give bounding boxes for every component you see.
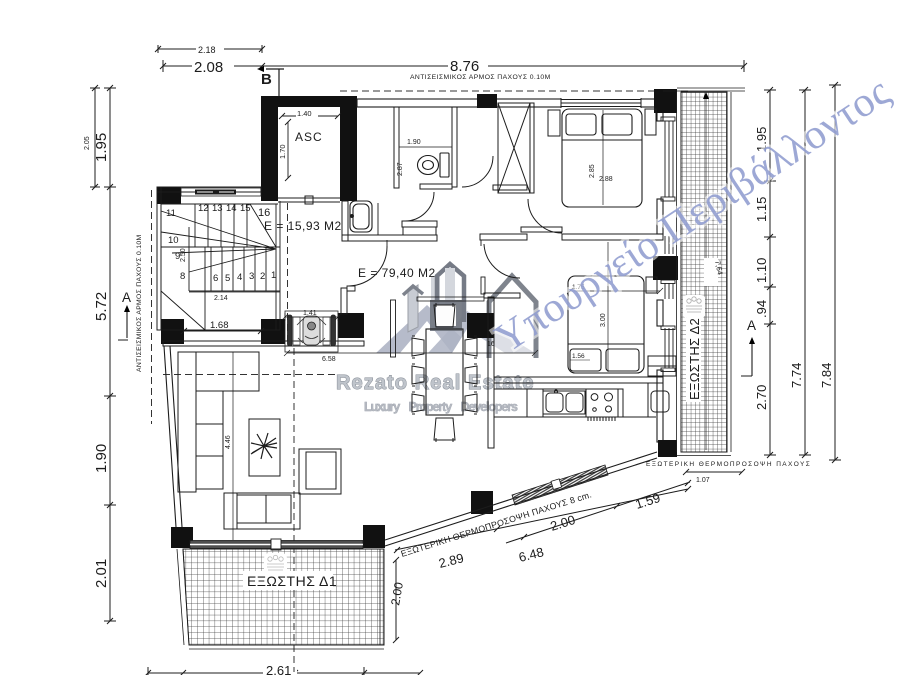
svg-text:5.72: 5.72	[93, 292, 110, 321]
svg-text:ΑΝΤΙΣΕΙΣΜΙΚΟΣ ΑΡΜΟΣ ΠΑΧΟΥΣ 0.1: ΑΝΤΙΣΕΙΣΜΙΚΟΣ ΑΡΜΟΣ ΠΑΧΟΥΣ 0.10Μ	[136, 235, 143, 372]
svg-text:ASC: ASC	[295, 130, 323, 144]
svg-text:14: 14	[226, 203, 237, 214]
svg-text:1.40: 1.40	[297, 109, 312, 118]
svg-text:A: A	[122, 290, 131, 305]
svg-text:A: A	[747, 318, 756, 333]
svg-text:2.18: 2.18	[198, 45, 216, 55]
svg-text:1.56: 1.56	[572, 353, 585, 360]
svg-text:8: 8	[180, 271, 185, 282]
svg-text:ΕΞΩΣΤΗΣ Δ2: ΕΞΩΣΤΗΣ Δ2	[687, 318, 702, 400]
svg-text:E = 79,40 M2: E = 79,40 M2	[358, 266, 436, 280]
svg-text:2.08: 2.08	[194, 59, 223, 76]
svg-text:1.07: 1.07	[696, 477, 710, 484]
svg-text:11: 11	[166, 208, 176, 219]
svg-text:E = 15,93 M2: E = 15,93 M2	[264, 219, 342, 233]
svg-text:7.84: 7.84	[819, 363, 834, 388]
svg-text:ΕΞΩΤΕΡΙΚΗ ΘΕΡΜΟΠΡΟΣΟΨΗ ΠΑΧΟΥΣ: ΕΞΩΤΕΡΙΚΗ ΘΕΡΜΟΠΡΟΣΟΨΗ ΠΑΧΟΥΣ	[646, 461, 811, 468]
svg-text:2.70: 2.70	[754, 385, 769, 410]
svg-text:16: 16	[487, 341, 495, 348]
svg-text:16: 16	[258, 207, 270, 219]
svg-text:3.00: 3.00	[600, 313, 607, 327]
svg-text:1.95: 1.95	[93, 133, 110, 162]
svg-text:2.88: 2.88	[599, 176, 613, 183]
svg-text:4.46: 4.46	[225, 435, 232, 449]
svg-text:5: 5	[225, 273, 230, 284]
svg-text:6.58: 6.58	[322, 356, 336, 363]
svg-text:2.01: 2.01	[93, 559, 110, 588]
svg-text:.94: .94	[754, 300, 769, 318]
svg-text:13: 13	[212, 203, 223, 214]
svg-text:2.14: 2.14	[214, 295, 228, 302]
svg-text:1.90: 1.90	[93, 444, 110, 473]
svg-text:15: 15	[240, 203, 251, 214]
svg-text:7.74: 7.74	[789, 363, 804, 388]
svg-text:B: B	[261, 71, 272, 88]
svg-text:ΑΝΤΙΣΕΙΣΜΙΚΟΣ ΑΡΜΟΣ ΠΑΧΟΥΣ 0.1: ΑΝΤΙΣΕΙΣΜΙΚΟΣ ΑΡΜΟΣ ΠΑΧΟΥΣ 0.10Μ	[410, 74, 551, 81]
svg-text:ΕΞΩΣΤΗΣ Δ1: ΕΞΩΣΤΗΣ Δ1	[247, 573, 337, 589]
svg-text:1.68: 1.68	[210, 320, 229, 331]
svg-text:8.76: 8.76	[450, 58, 479, 75]
svg-text:2: 2	[260, 271, 265, 282]
svg-text:1.70: 1.70	[278, 144, 287, 159]
svg-text:12: 12	[198, 203, 209, 214]
svg-text:6: 6	[213, 273, 218, 284]
svg-text:10: 10	[168, 235, 179, 246]
svg-text:1.41: 1.41	[303, 310, 317, 317]
svg-text:4: 4	[237, 272, 242, 283]
svg-text:2.85: 2.85	[589, 164, 596, 178]
svg-text:2.87: 2.87	[397, 162, 404, 176]
svg-text:3: 3	[249, 271, 254, 282]
svg-text:1.90: 1.90	[407, 139, 421, 146]
svg-text:2.05: 2.05	[84, 136, 91, 150]
svg-text:2.50: 2.50	[180, 248, 187, 262]
svg-text:Luxury Property Developers: Luxury Property Developers	[364, 400, 519, 414]
svg-text:1: 1	[271, 270, 276, 281]
svg-text:2.61: 2.61	[266, 663, 291, 675]
svg-text:1.10: 1.10	[754, 258, 769, 283]
